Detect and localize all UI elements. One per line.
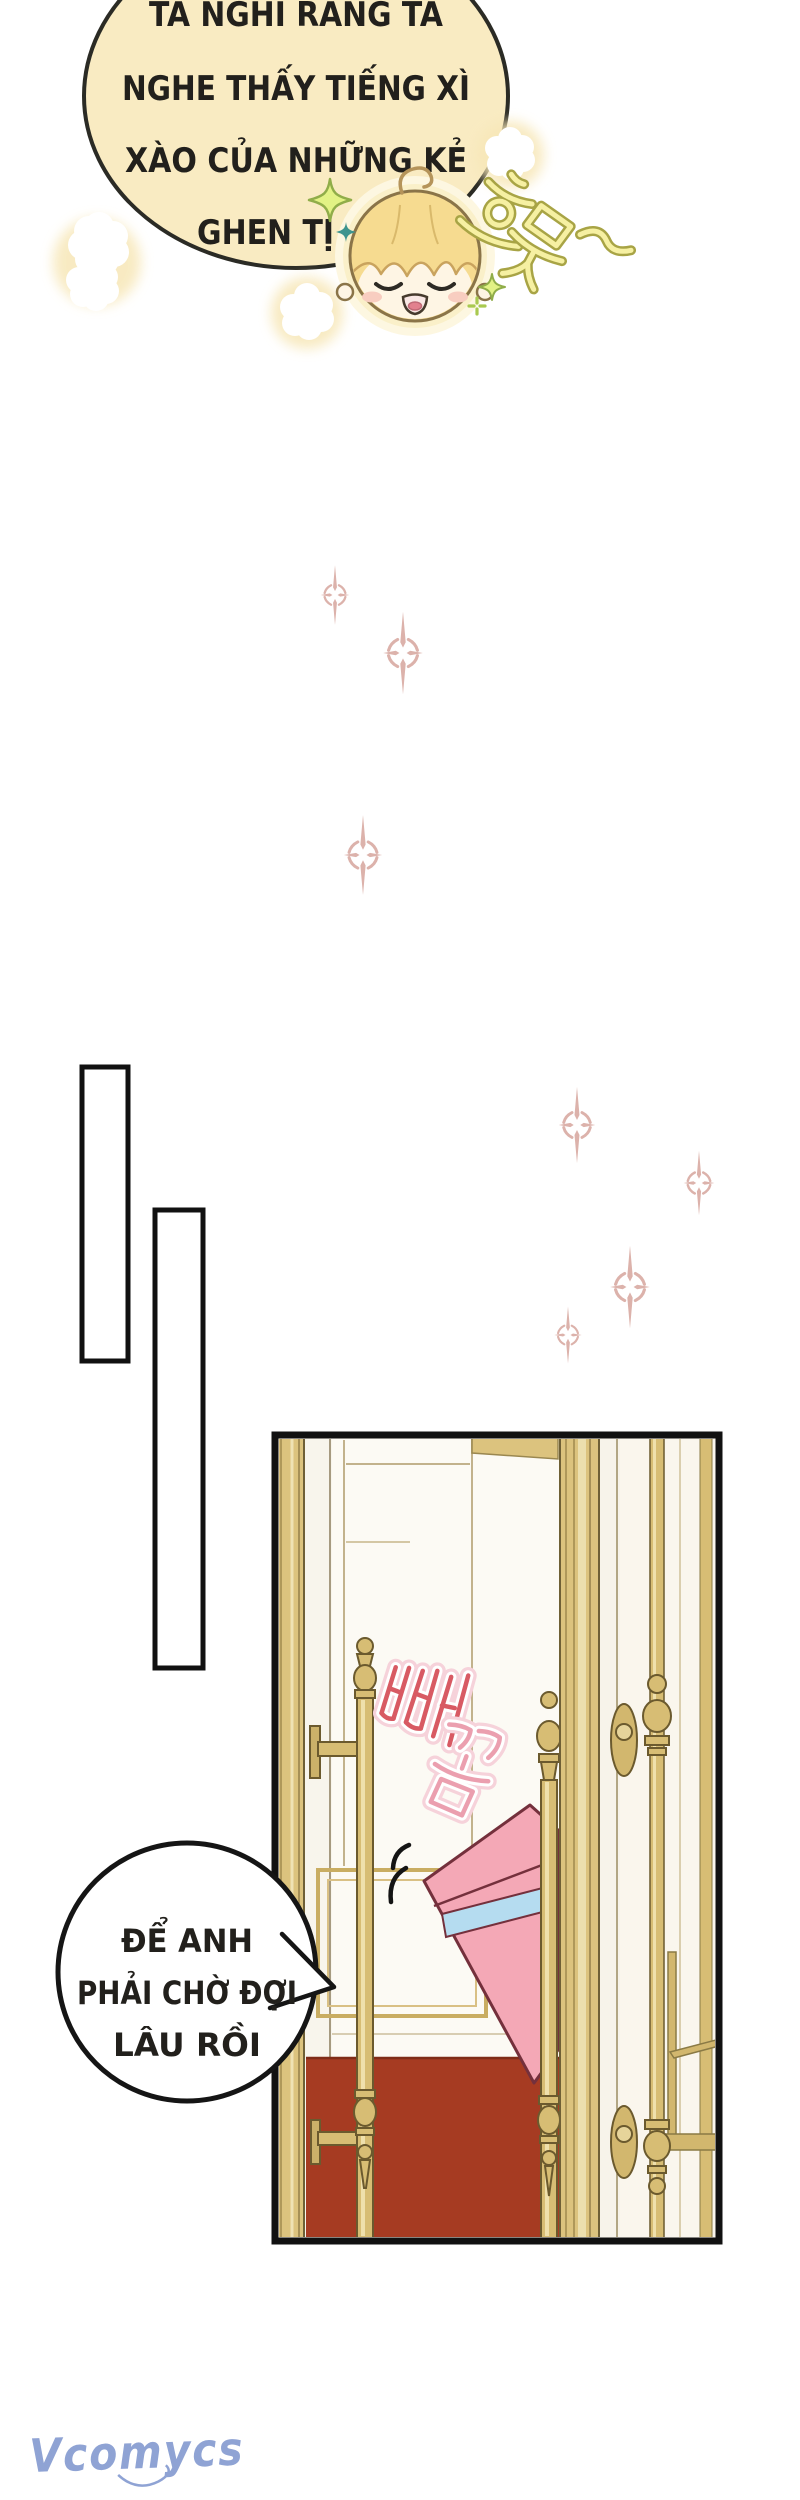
bubble-bottom-line-1: ĐỂ ANH — [121, 1917, 253, 1960]
door-knob — [616, 1724, 632, 1740]
bubble-top-line-3: XÀO CỦA NHỮNG KẺ — [125, 137, 467, 181]
sparkle-icon — [344, 815, 382, 895]
red-carpet — [306, 2058, 560, 2242]
pink-sparkles — [321, 565, 715, 1363]
panel-frame-rectangle-2 — [155, 1210, 203, 1668]
comic-artwork: TA NGHĨ RẰNG TA NGHE THẤY TIẾNG XÌ XÀO C… — [0, 0, 800, 2500]
sparkle-icon — [559, 1087, 596, 1163]
sparkle-icon — [610, 1246, 650, 1329]
door-right — [611, 1432, 719, 2242]
door-edge-gold-band — [560, 1432, 600, 2242]
watermark-text: Vcomycs — [28, 2422, 245, 2483]
bubble-top-line-2: NGHE THẤY TIẾNG XÌ — [122, 64, 470, 109]
watermark: Vcomycs — [28, 2422, 245, 2490]
character-blush-left — [362, 292, 382, 303]
door-frame-left — [275, 1432, 305, 2242]
bubble-bottom-line-3: LÂU RỒI — [113, 2021, 261, 2064]
sparkle-icon — [554, 1306, 581, 1363]
sparkle-icon — [383, 612, 423, 695]
panel-frame-rectangle-1 — [82, 1067, 128, 1361]
comic-page: TA NGHĨ RẰNG TA NGHE THẤY TIẾNG XÌ XÀO C… — [0, 0, 800, 2500]
door-panel — [275, 1432, 719, 2242]
bubble-bottom-line-2: PHẢI CHỜ ĐỢI — [77, 1971, 297, 2012]
sparkle-icon — [684, 1151, 715, 1215]
door-knob — [616, 2126, 632, 2142]
sparkle-icon — [321, 565, 350, 625]
character-ear-left — [337, 284, 353, 300]
cloud-decoration-left — [53, 212, 141, 311]
bubble-top-line-1: TA NGHĨ RẰNG TA — [149, 0, 444, 35]
cloud-decoration-bottom — [271, 277, 343, 349]
character-tongue — [409, 302, 422, 310]
character-blush-right — [448, 292, 468, 303]
